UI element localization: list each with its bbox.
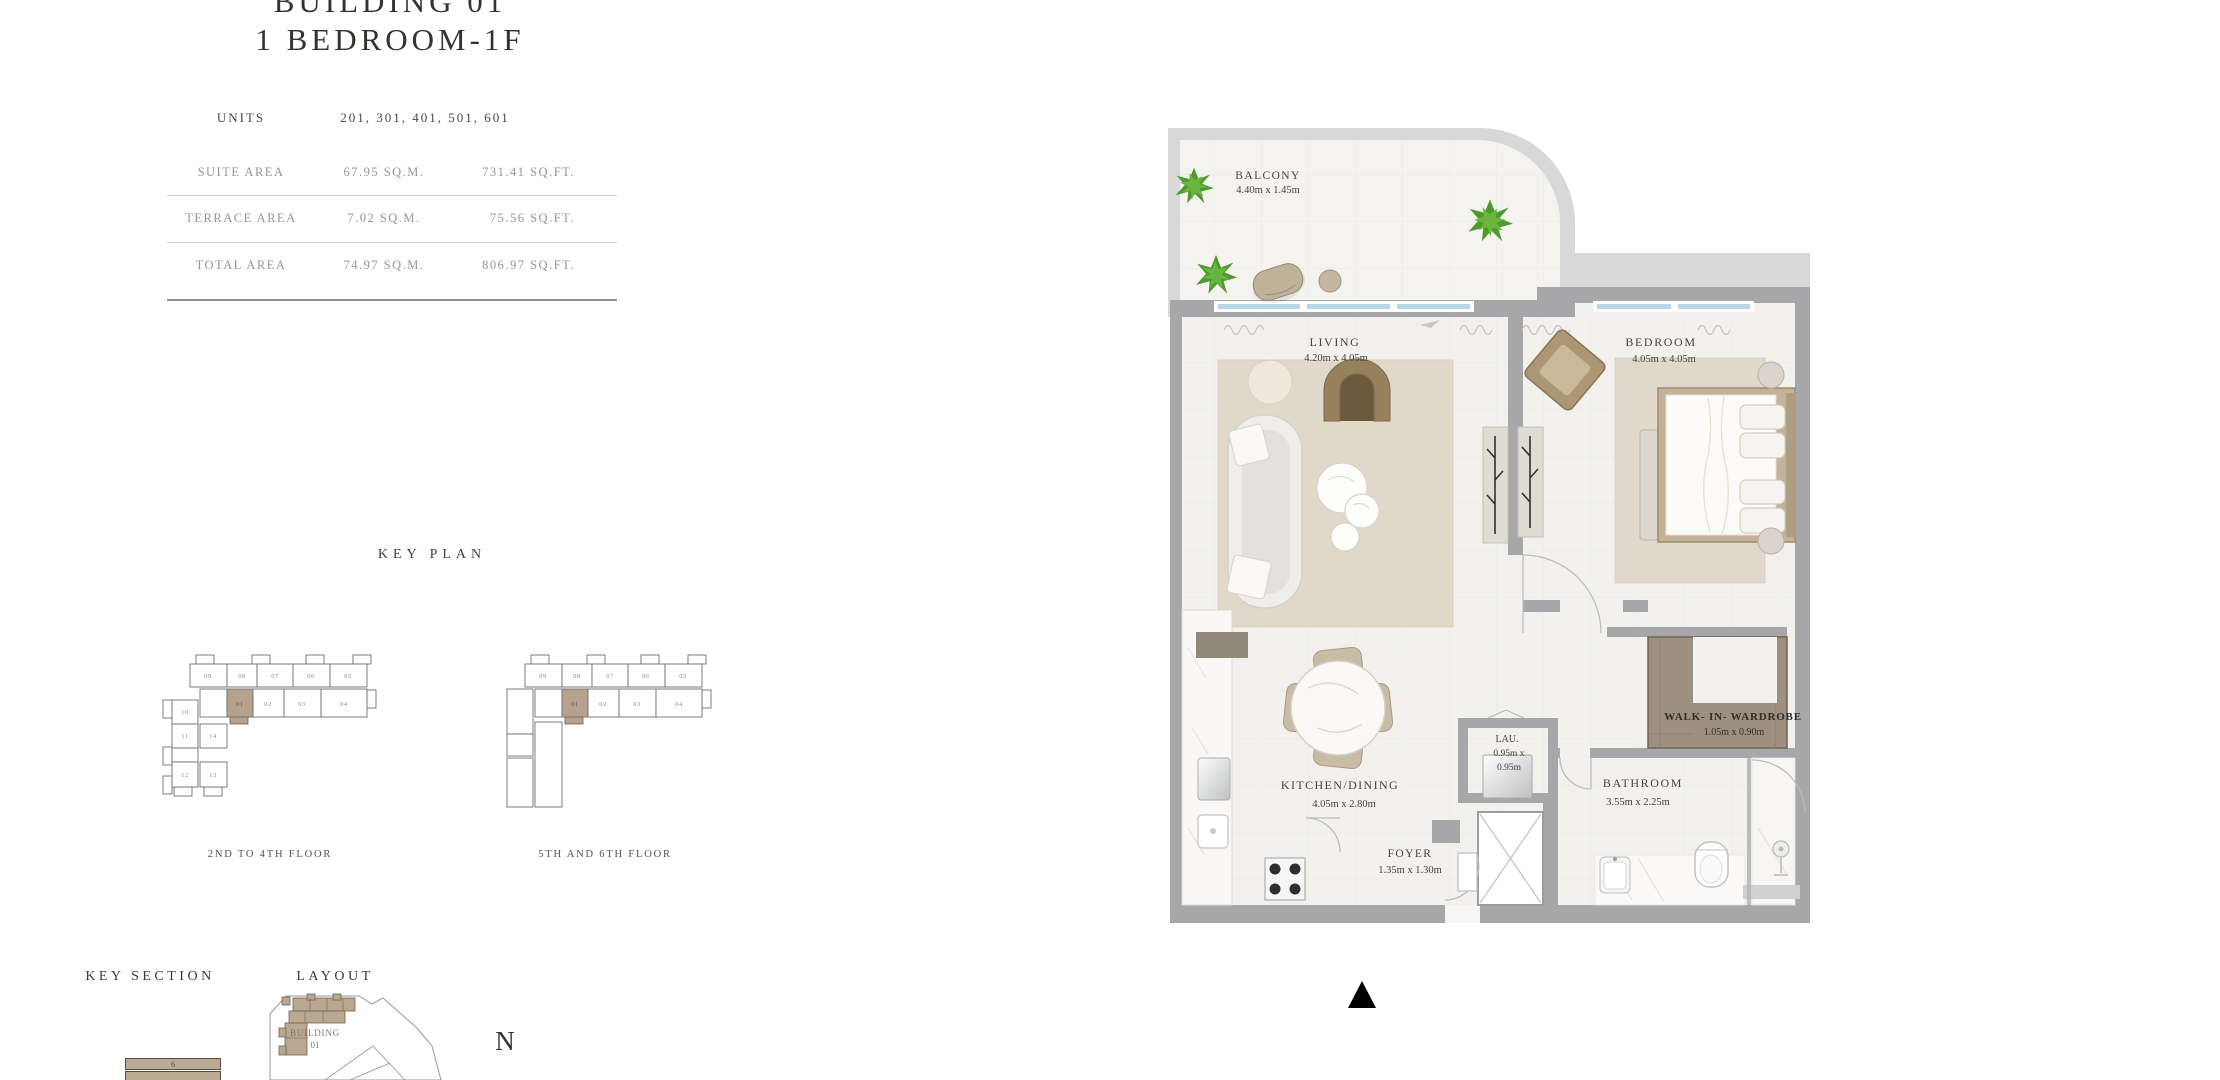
key-plan-caption-1: 2ND TO 4TH FLOOR [160,849,380,860]
floor-plan-graphic: BALCONY 4.40m x 1.45m LIVING 4.20m x 4.0… [1168,128,1813,923]
floor-plan: BALCONY 4.40m x 1.45m LIVING 4.20m x 4.0… [1168,128,1813,923]
key-plan-2nd-4th: 09 08 07 06 05 01 02 03 04 10 11 12 14 1… [160,650,380,810]
entry-opening [1445,905,1480,923]
kp1-unit: 09 [204,673,212,680]
foyer-label: FOYER [1388,848,1433,860]
key-section-bar: 6 [125,1058,221,1070]
table-row: TOTAL AREA 74.97 SQ.M. 806.97 SQ.FT. [167,253,617,277]
key-section-diagram: 6 [125,1058,221,1080]
layout-site-plan: BUILDING 01 [255,988,485,1080]
kitchen-dims: 4.05m x 2.80m [1312,799,1376,810]
units-value: 201, 301, 401, 501, 601 [315,110,535,126]
wardrobe-dims: 1.05m x 0.90m [1704,727,1765,738]
wardrobe-label: WALK- IN- WARDROBE [1664,711,1802,723]
suite-area-sqm: 67.95 SQ.M. [315,165,453,180]
unit-type-title: 1 BEDROOM-1F [140,22,640,58]
floorplan-brochure-page: BUILDING 01 1 BEDROOM-1F UNITS 201, 301,… [0,0,2220,1080]
laundry-label: LAU. [1495,734,1518,745]
kp1-unit: 05 [344,673,352,680]
key-plan-caption-2: 5TH AND 6TH FLOOR [495,849,715,860]
kp2-unit: 03 [633,701,641,708]
living-pouf [1248,360,1292,404]
layout-heading: LAYOUT [260,969,410,985]
kp1-unit: 04 [340,701,348,708]
balcony-dims: 4.40m x 1.45m [1236,185,1300,196]
kp2-unit: 08 [573,673,581,680]
kp2-unit: 04 [675,701,683,708]
units-row: UNITS 201, 301, 401, 501, 601 [167,106,617,130]
kp1-unit: 06 [307,673,315,680]
total-area-sqft: 806.97 SQ.FT. [453,258,575,273]
divider [167,242,617,243]
kp1-unit: 10 [181,709,189,716]
suite-area-sqft: 731.41 SQ.FT. [453,165,575,180]
key-section-bar-label: 6 [171,1060,175,1069]
kp2-unit: 02 [599,701,607,708]
bathroom-label: BATHROOM [1603,776,1683,790]
key-section-heading: KEY SECTION [70,969,230,985]
bedroom-side-table [1758,362,1784,388]
kp1-unit: 12 [181,772,189,779]
kp1-unit: 08 [238,673,246,680]
balcony-side-table [1319,270,1341,292]
units-label: UNITS [167,110,315,126]
north-arrow-icon [1348,981,1376,1008]
bathroom-dims: 3.55m x 2.25m [1606,797,1670,808]
living-dims: 4.20m x 4.05m [1304,353,1368,364]
total-area-label: TOTAL AREA [167,258,315,273]
suite-area-label: SUITE AREA [167,165,315,180]
bedroom-label: BEDROOM [1625,335,1696,349]
laundry-dims-1: 0.95m x [1493,749,1524,759]
layout-building-number: 01 [311,1040,320,1050]
terrace-area-sqm: 7.02 SQ.M. [315,211,453,226]
kp1-unit: 11 [181,733,188,740]
kp1-unit: 14 [209,733,217,740]
bedroom-dims: 4.05m x 4.05m [1632,354,1696,365]
page-title: BUILDING 01 1 BEDROOM-1F [140,0,640,58]
living-sofa [1226,415,1302,608]
table-row: TERRACE AREA 7.02 SQ.M. 75.56 SQ.FT. [167,206,617,230]
laundry-dims-2: 0.95m [1497,763,1522,773]
terrace-area-sqft: 75.56 SQ.FT. [453,211,575,226]
bedroom-bed [1658,388,1796,542]
table-row: SUITE AREA 67.95 SQ.M. 731.41 SQ.FT. [167,160,617,184]
total-area-sqm: 74.97 SQ.M. [315,258,453,273]
bedroom-side-table [1758,528,1784,554]
divider [167,195,617,196]
balcony-label: BALCONY [1235,170,1300,182]
terrace-area-label: TERRACE AREA [167,211,315,226]
kp1-unit: 03 [298,701,306,708]
compass-north-label: N [488,1026,522,1057]
kp1-unit-highlight: 01 [236,701,244,708]
layout-building-label: BUILDING [290,1028,340,1038]
divider [167,299,617,301]
kitchen-label: KITCHEN/DINING [1281,778,1399,792]
area-table: UNITS 201, 301, 401, 501, 601 SUITE AREA… [167,100,617,310]
entry-door-leaf [1458,853,1477,891]
living-arch-chair [1324,359,1390,421]
kp2-unit-highlight: 01 [571,701,579,708]
kp1-unit: 13 [209,772,217,779]
key-section-bar [125,1071,221,1080]
key-plan-heading: KEY PLAN [332,547,532,563]
building-title: BUILDING 01 [140,0,640,20]
kp1-unit: 07 [271,673,279,680]
kp1-unit: 02 [264,701,272,708]
foyer-dims: 1.35m x 1.30m [1378,865,1442,876]
kp2-unit: 05 [679,673,687,680]
kp2-unit: 06 [642,673,650,680]
kp2-unit: 09 [539,673,547,680]
key-plan-5th-6th: 09 08 07 06 05 01 02 03 04 [495,650,715,810]
elevator-shaft [1478,812,1543,905]
living-label: LIVING [1310,335,1361,349]
kp2-unit: 07 [606,673,614,680]
